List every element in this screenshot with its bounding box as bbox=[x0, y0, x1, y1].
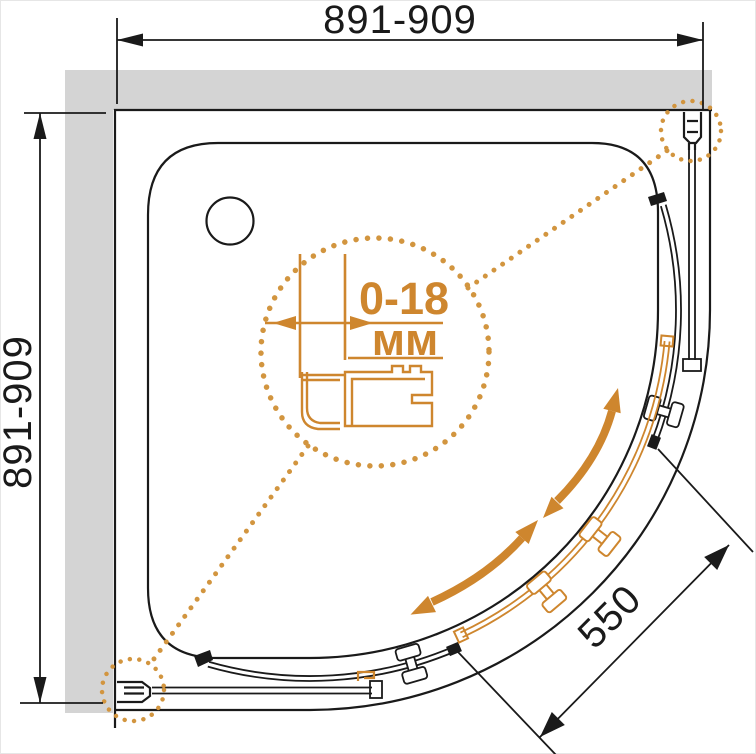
adjustment-unit-label: мм bbox=[372, 314, 439, 365]
door-slide-arrow-lower bbox=[411, 520, 539, 615]
left-wall bbox=[65, 70, 113, 713]
door-guide-clip-top bbox=[661, 335, 674, 346]
dimension-top-label: 891-909 bbox=[323, 0, 477, 42]
glass-end-bracket-right bbox=[683, 359, 701, 371]
image-border bbox=[1, 1, 756, 754]
profile-cross-section bbox=[302, 366, 432, 429]
detail-leader-line-top bbox=[468, 150, 668, 288]
tray-inner-rim bbox=[148, 143, 658, 658]
wall-inner-edge bbox=[115, 110, 712, 728]
detail-leader-line-bottom bbox=[151, 446, 308, 663]
sliding-door-black-upper bbox=[643, 192, 684, 450]
door-slide-arrow-upper bbox=[543, 388, 621, 518]
sliding-door-black-lower bbox=[194, 642, 462, 685]
door-handle-bottom bbox=[194, 650, 213, 667]
adjustment-dimension: 0-18 мм bbox=[265, 254, 449, 378]
fixed-glass-bottom bbox=[152, 681, 382, 698]
door-dimension-label: 550 bbox=[570, 577, 650, 657]
diagram-canvas: 891-909 891-909 550 0-18 мм bbox=[0, 0, 756, 754]
dimension-left-label: 891-909 bbox=[0, 335, 40, 489]
drain-circle bbox=[207, 198, 254, 245]
glass-end-bracket-bottom bbox=[370, 681, 382, 698]
door-handle-top bbox=[648, 192, 667, 206]
fixed-glass-right bbox=[683, 150, 701, 371]
technical-diagram: 891-909 891-909 550 0-18 мм bbox=[0, 0, 756, 754]
door-slide-arrows bbox=[411, 388, 621, 615]
top-wall bbox=[65, 70, 712, 110]
detail-zoom: 0-18 мм bbox=[151, 150, 668, 663]
